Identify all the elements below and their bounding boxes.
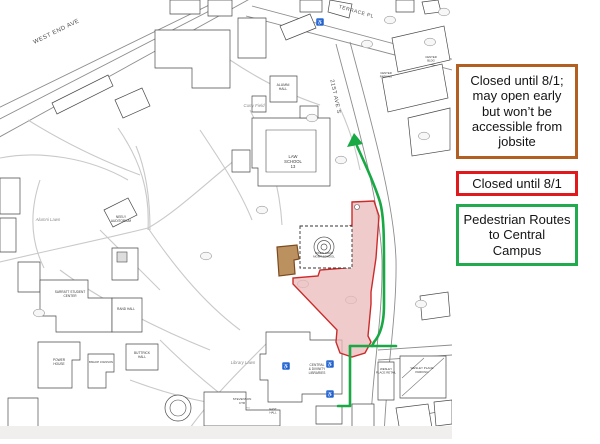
building-label: CENTER <box>63 294 77 298</box>
screenshot-stage: ♿♿♿♿WEST END AVETERRACE PL21ST AVE SAlum… <box>0 0 600 439</box>
building-label: BLDG <box>427 59 435 63</box>
lot-badge <box>439 8 450 16</box>
lawn-label: Alumni Lawn <box>35 217 61 222</box>
building-label: RAND HALL <box>117 307 135 311</box>
map-bottom-edge <box>0 426 452 439</box>
building-label: AUDITORIUM <box>111 219 131 223</box>
building-label: PARKING <box>415 370 429 374</box>
building-tower <box>117 252 127 262</box>
lot-badge <box>385 16 396 24</box>
building <box>0 218 16 252</box>
building <box>396 0 414 12</box>
accessibility-glyph: ♿ <box>283 363 290 370</box>
lot-badge <box>201 252 212 260</box>
legend-panel: Closed until 8/1; may open early but won… <box>452 0 600 439</box>
building <box>232 150 250 172</box>
lawn-label: Library Lawn <box>231 360 256 365</box>
building <box>208 0 232 16</box>
building-label: HALL <box>138 355 146 359</box>
accessibility-glyph: ♿ <box>327 391 334 398</box>
round-building <box>165 395 191 421</box>
building <box>434 400 452 426</box>
construction-building <box>300 226 352 268</box>
building <box>300 0 322 12</box>
building <box>112 298 142 332</box>
campus-map: ♿♿♿♿WEST END AVETERRACE PL21ST AVE SAlum… <box>0 0 452 439</box>
lot-badge <box>419 132 430 140</box>
building-label: CTR <box>239 401 246 405</box>
building-label: 13 <box>291 164 296 169</box>
campus-map-container: ♿♿♿♿WEST END AVETERRACE PL21ST AVE SAlum… <box>0 0 452 439</box>
legend-closed-jobsite-box: Closed until 8/1; may open early but won… <box>456 64 578 159</box>
building-label: BISHOP JOHNSON <box>89 360 113 364</box>
legend-closed-box: Closed until 8/1 <box>456 171 578 196</box>
building-label: PARKING <box>380 75 392 79</box>
building <box>170 0 200 14</box>
building <box>252 118 330 186</box>
building <box>18 262 40 292</box>
lot-badge <box>257 206 268 214</box>
lot-badge <box>307 114 318 122</box>
lawn-label: Curry Field <box>243 103 265 108</box>
building-label: LIBRARIES <box>309 371 326 375</box>
accessibility-glyph: ♿ <box>327 361 334 368</box>
lot-badge <box>34 309 45 317</box>
lot-badge <box>416 300 427 308</box>
building <box>316 406 342 424</box>
building <box>422 0 441 14</box>
map-detail-circle <box>355 205 360 210</box>
lot-badge <box>362 40 373 48</box>
building-label: HOUSE <box>53 362 64 366</box>
building-label: PLACE RETAIL <box>376 371 397 375</box>
building-label: MGMT SCHOOL <box>313 255 335 259</box>
building-label: HALL <box>279 87 288 91</box>
lot-badge <box>425 38 436 46</box>
accessibility-glyph: ♿ <box>317 19 324 26</box>
building <box>0 178 20 214</box>
building <box>352 404 374 428</box>
legend-pedestrian-routes-box: Pedestrian Routes to Central Campus <box>456 204 578 266</box>
lot-badge <box>336 156 347 164</box>
building-label: HALL <box>270 411 277 415</box>
building <box>238 18 266 58</box>
